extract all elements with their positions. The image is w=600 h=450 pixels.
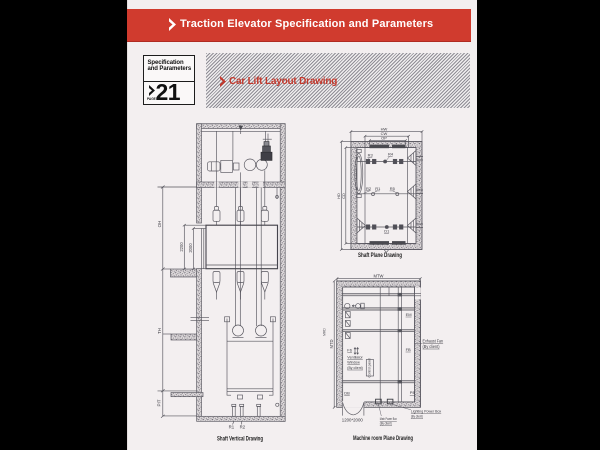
svg-text:1200*2000: 1200*2000	[342, 418, 364, 423]
svg-text:EM: EM	[406, 312, 412, 317]
svg-text:R2: R2	[366, 186, 372, 191]
svg-text:R1: R1	[375, 186, 381, 191]
svg-text:OH: OH	[157, 221, 162, 228]
svg-text:MTD: MTD	[329, 339, 334, 348]
svg-text:(By client): (By client)	[380, 422, 393, 426]
svg-text:D1: D1	[384, 229, 390, 234]
svg-text:PIT: PIT	[157, 399, 162, 406]
svg-text:R5: R5	[390, 186, 396, 191]
svg-text:(By client): (By client)	[347, 365, 363, 370]
svg-text:2200: 2200	[179, 242, 184, 252]
svg-text:(By client): (By client)	[411, 414, 424, 418]
svg-text:CD: CD	[341, 193, 346, 199]
svg-text:R3: R3	[368, 153, 374, 158]
svg-text:Machine room Plane Drawing: Machine room Plane Drawing	[353, 435, 413, 442]
svg-text:Control panel: Control panel	[367, 358, 371, 377]
svg-text:R1: R1	[229, 425, 235, 430]
svg-text:(By client): (By client)	[423, 344, 441, 349]
svg-text:MRD: MRD	[323, 328, 327, 336]
svg-text:R2: R2	[240, 425, 246, 430]
svg-text:Main Power Box: Main Power Box	[380, 417, 397, 421]
svg-text:R4: R4	[388, 152, 394, 157]
svg-text:Exhaust Fan: Exhaust Fan	[423, 338, 444, 343]
svg-text:TH: TH	[157, 328, 162, 334]
svg-text:Shaft Plane Drawing: Shaft Plane Drawing	[358, 252, 402, 259]
svg-text:FB: FB	[406, 347, 411, 352]
svg-text:DB: DB	[344, 391, 350, 396]
svg-text:PB: PB	[410, 390, 416, 395]
svg-text:2000: 2000	[188, 243, 193, 253]
svg-text:Shaft Vertical Drawing: Shaft Vertical Drawing	[217, 436, 263, 443]
svg-text:OP: OP	[381, 136, 387, 141]
svg-text:Lighting Power Box: Lighting Power Box	[411, 409, 441, 414]
svg-text:F6: F6	[347, 348, 352, 353]
svg-text:MTW: MTW	[374, 273, 384, 278]
